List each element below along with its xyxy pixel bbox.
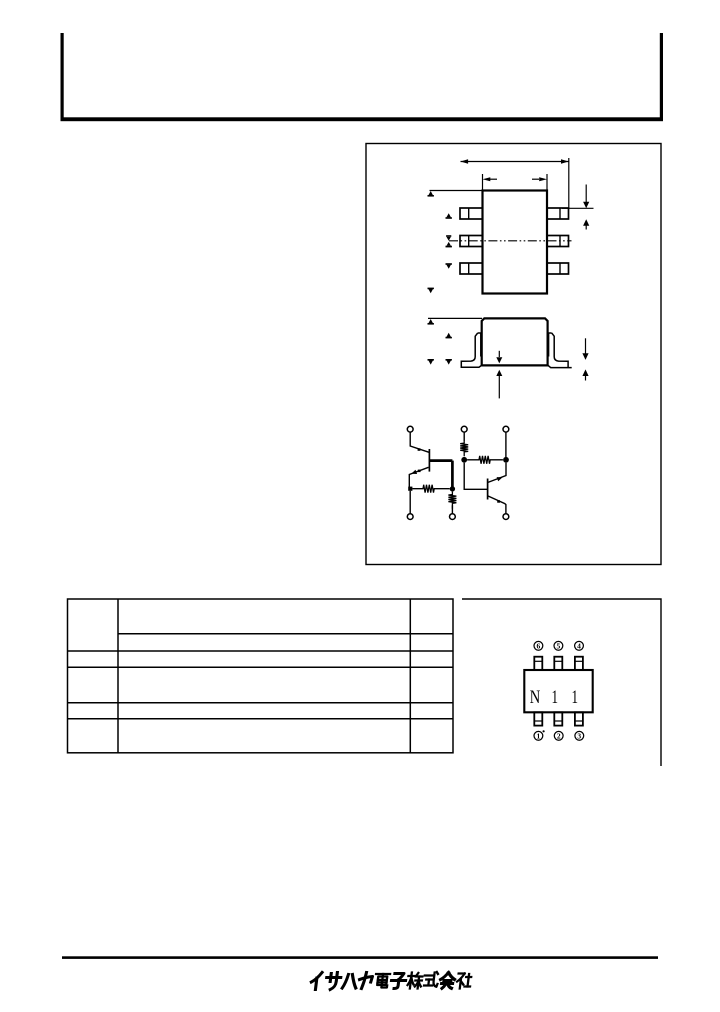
svg-text:1: 1: [537, 732, 541, 741]
svg-text:N: N: [530, 688, 541, 708]
svg-text:1: 1: [572, 688, 579, 708]
svg-text:3: 3: [577, 732, 581, 741]
svg-text:4: 4: [577, 642, 581, 651]
svg-text:5: 5: [557, 642, 561, 651]
svg-text:6: 6: [537, 642, 541, 651]
svg-text:1: 1: [552, 688, 559, 708]
svg-text:2: 2: [557, 732, 561, 741]
